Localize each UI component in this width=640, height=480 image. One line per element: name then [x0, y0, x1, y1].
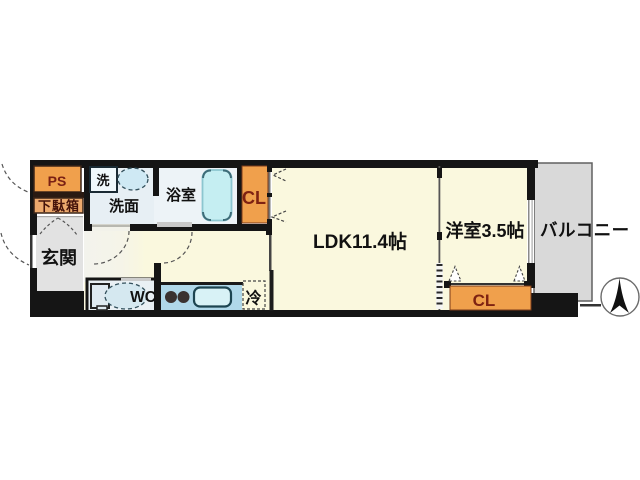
svg-text:洋室3.5帖: 洋室3.5帖 — [445, 220, 524, 241]
svg-text:冷: 冷 — [245, 289, 261, 308]
svg-text:WC: WC — [130, 289, 156, 306]
svg-text:LDK11.4帖: LDK11.4帖 — [313, 230, 407, 253]
svg-text:玄関: 玄関 — [41, 247, 77, 268]
svg-text:浴室: 浴室 — [166, 186, 196, 204]
svg-text:CL: CL — [242, 188, 266, 208]
svg-text:CL: CL — [473, 291, 496, 310]
svg-text:バルコニー: バルコニー — [540, 220, 630, 240]
svg-text:下駄箱: 下駄箱 — [38, 199, 80, 214]
svg-text:PS: PS — [48, 173, 67, 189]
svg-text:洗: 洗 — [96, 173, 109, 188]
svg-text:洗面: 洗面 — [109, 197, 139, 215]
